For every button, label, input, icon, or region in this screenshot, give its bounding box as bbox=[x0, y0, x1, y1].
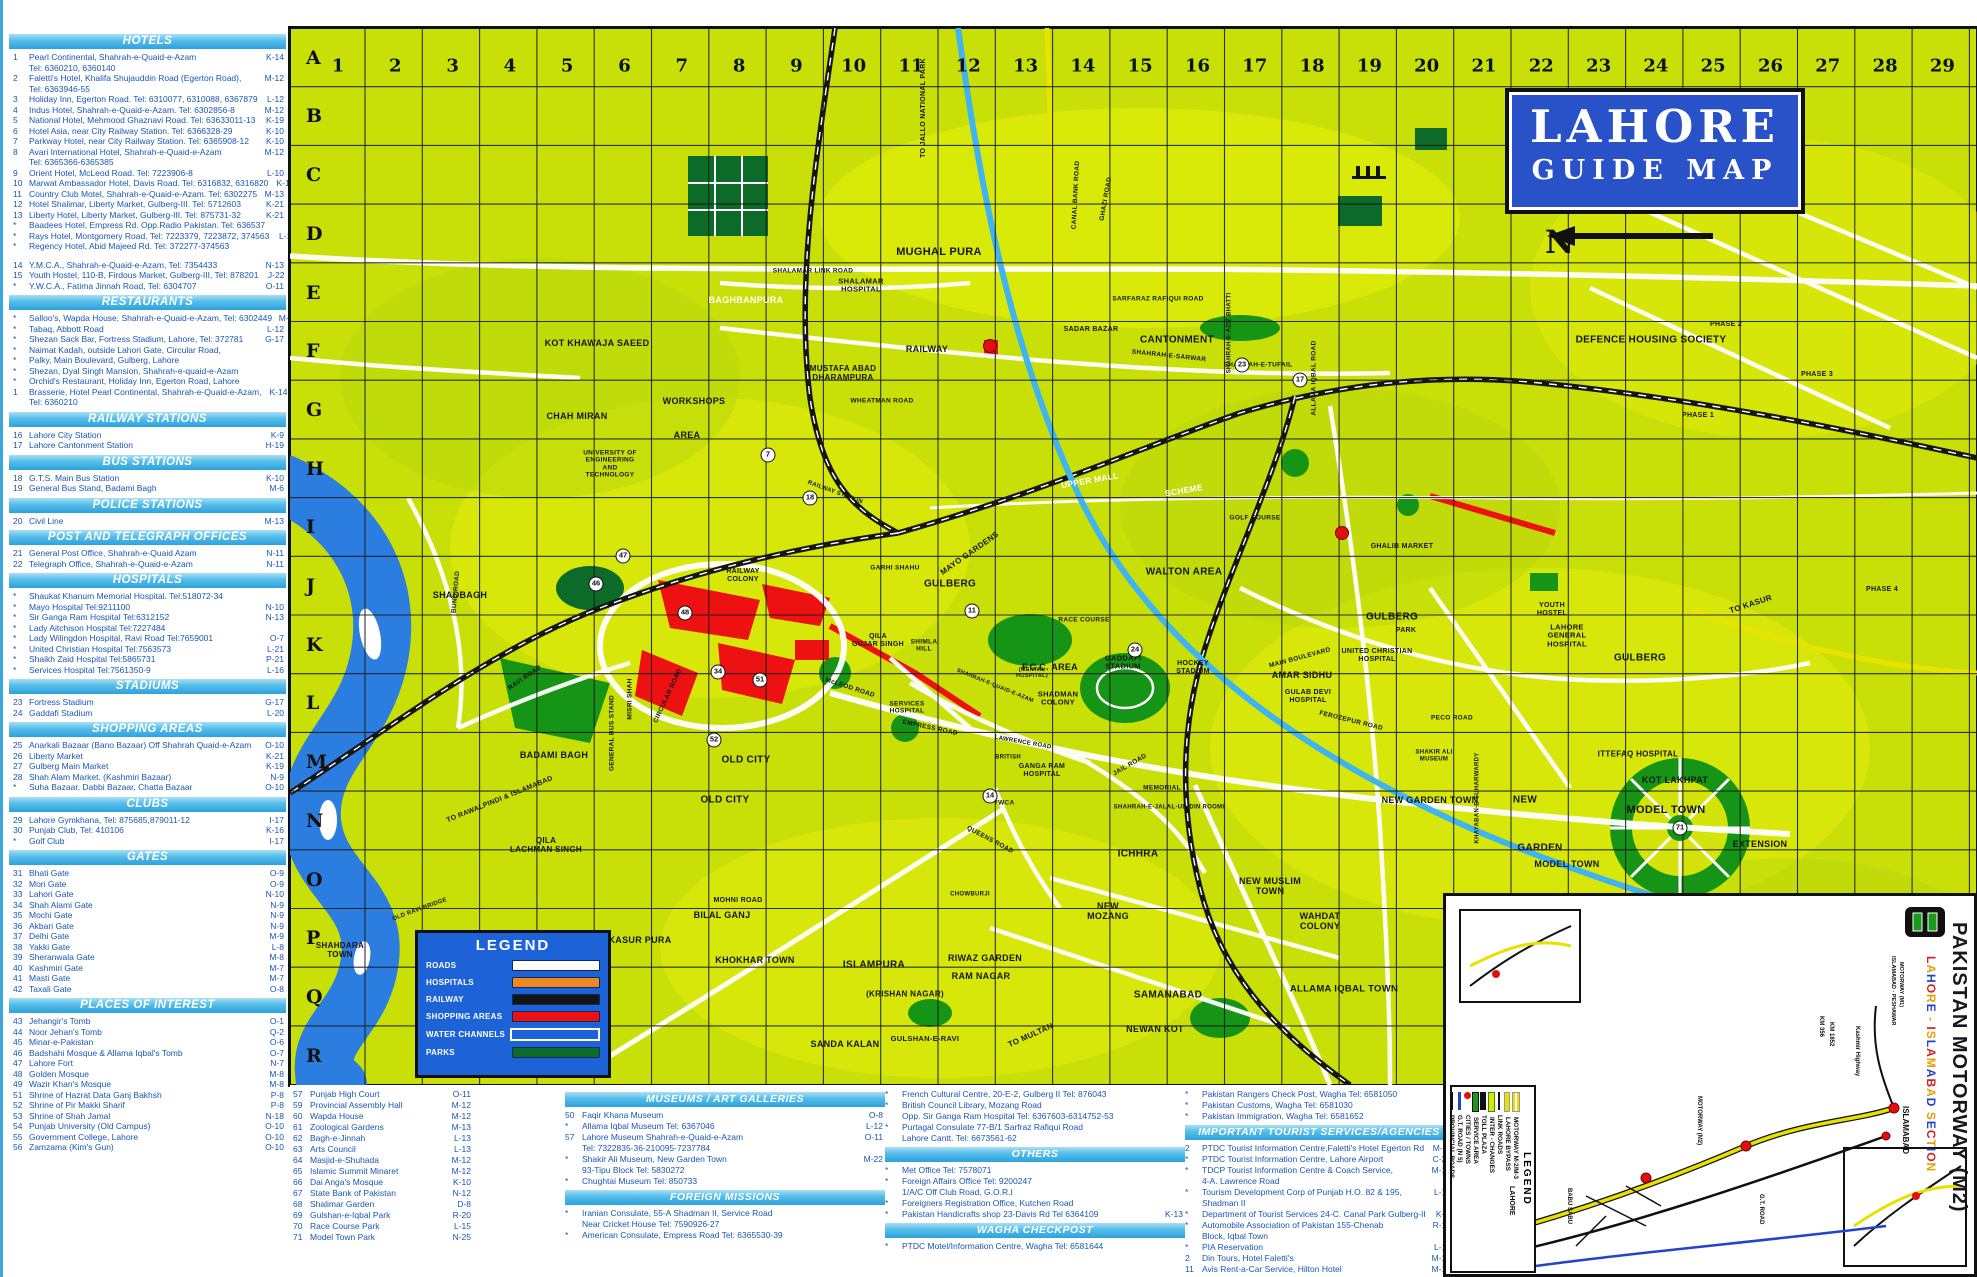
item-text: Wapda House bbox=[310, 1111, 443, 1122]
list-item: *Iranian Consulate, 55-A Shadman II, Ser… bbox=[565, 1208, 885, 1230]
item-line: Din Tours, Hotel Faletti's bbox=[1202, 1253, 1423, 1264]
grid-ref: K-10 bbox=[443, 1177, 473, 1188]
map-label: (KRISHAN NAGAR) bbox=[866, 991, 944, 1000]
grid-row-label: J bbox=[306, 575, 315, 597]
map-label: GOLF COURSE bbox=[1230, 514, 1281, 521]
item-number: * bbox=[1185, 1220, 1202, 1231]
item-text: State Bank of Pakistan bbox=[310, 1188, 443, 1199]
map-label: ITTEFAQ HOSPITAL bbox=[1598, 751, 1679, 760]
item-line: PTDC Tourist Information Centre, Lahore … bbox=[1202, 1154, 1423, 1165]
item-line: General Bus Stand, Badami Bagh bbox=[29, 483, 258, 494]
item-line: Punjab High Court bbox=[310, 1089, 443, 1100]
grid-col-label: 5 bbox=[561, 56, 574, 77]
item-number: 46 bbox=[13, 1048, 29, 1059]
grid-col-label: 26 bbox=[1758, 56, 1783, 77]
grid-col-label: 17 bbox=[1242, 56, 1267, 77]
grid-ref: K-16 bbox=[258, 825, 286, 836]
map-label: OLD CITY bbox=[721, 754, 770, 765]
map-marker: 51 bbox=[753, 673, 768, 688]
list-item: 2PTDC Tourist Information Centre,Faletti… bbox=[1185, 1143, 1453, 1154]
item-text: Avis Rent-a-Car Service, Hilton Hotel bbox=[1202, 1264, 1423, 1275]
map-marker: 11 bbox=[965, 604, 980, 619]
item-text: Mochi Gate bbox=[29, 910, 258, 921]
map-label: MOHNI ROAD bbox=[714, 897, 763, 905]
grid-col-label: 4 bbox=[504, 56, 517, 77]
grid-row-label: G bbox=[306, 399, 322, 421]
red-dot-marker bbox=[1335, 526, 1349, 540]
double-yellow-symbol bbox=[1512, 1092, 1520, 1112]
list-item: *Salloo's, Wapda House, Shahrah-e-Quaid-… bbox=[7, 313, 288, 324]
list-item: 23Fortress StadiumG-17 bbox=[7, 697, 288, 708]
item-text: American Consulate, Empress Road Tel: 63… bbox=[582, 1230, 855, 1241]
list-item: 11Avis Rent-a-Car Service, Hilton HotelM… bbox=[1185, 1264, 1453, 1275]
item-number: * bbox=[1185, 1187, 1202, 1198]
map-label: ICHHRA bbox=[1118, 848, 1159, 859]
item-number: * bbox=[565, 1121, 582, 1132]
list-item: 21General Post Office, Shahrah-e-Quaid A… bbox=[7, 548, 288, 559]
grid-col-label: 20 bbox=[1414, 56, 1439, 77]
grid-col-label: 3 bbox=[446, 56, 459, 77]
grid-ref: R-20 bbox=[443, 1210, 473, 1221]
item-text: Shezan, Dyal Singh Mansion, Shahrah-e-qu… bbox=[29, 366, 258, 377]
legend-item: ROADS bbox=[426, 960, 600, 971]
item-line: PTDC Tourist Information Centre,Faletti'… bbox=[1202, 1143, 1424, 1154]
item-line: Lahore Cantt. Tel: 6673561-62 bbox=[902, 1133, 1155, 1144]
inset-map-label: LAHORE bbox=[1508, 1186, 1515, 1216]
list-item: 57Lahore Museum Shahrah-e-Quaid-e-AzamTe… bbox=[565, 1132, 885, 1154]
map-label: SHAHDARA TOWN bbox=[316, 942, 364, 960]
grid-ref: L-20 bbox=[258, 708, 286, 719]
map-marker: 71 bbox=[1673, 821, 1688, 836]
map-label: CHOWBURJI bbox=[950, 892, 990, 899]
grid-row-label: A bbox=[306, 47, 321, 69]
item-line: Naimat Kadah, outside Lahori Gate, Circu… bbox=[29, 345, 258, 356]
item-line: Holiday Inn, Egerton Road. Tel: 6310077,… bbox=[29, 94, 258, 105]
item-text: Y.M.C.A., Shahrah-e-Quaid-e-Azam, Tel: 7… bbox=[29, 260, 258, 271]
item-line: Lahore Gymkhana, Tel: 875685,879011-12 bbox=[29, 815, 258, 826]
item-line: Iranian Consulate, 55-A Shadman II, Serv… bbox=[582, 1208, 855, 1219]
item-text: Lahore Fort bbox=[29, 1058, 258, 1069]
motorway-symbol-icon bbox=[1904, 906, 1946, 938]
item-number: 51 bbox=[13, 1090, 29, 1101]
list-item: 35Mochi GateN-9 bbox=[7, 910, 288, 921]
legend-label: SHOPPING AREAS bbox=[426, 1012, 502, 1021]
map-label: YOUTH HOSTEL bbox=[1537, 602, 1567, 618]
item-text: British Council Library, Mozang RoadOpp.… bbox=[902, 1100, 1155, 1122]
grid-row-label: I bbox=[306, 516, 315, 538]
item-number: 47 bbox=[13, 1058, 29, 1069]
legend-item: HOSPITALS bbox=[426, 977, 600, 988]
list-item: 63Arts CouncilL-13 bbox=[293, 1144, 473, 1155]
item-number: * bbox=[565, 1230, 582, 1241]
inset-legend-label: INTER - CHANGES bbox=[1488, 1117, 1495, 1173]
item-text: Pakistan Handicrafts shop 23-Davis Rd Te… bbox=[902, 1209, 1155, 1220]
list-item: 10Marwat Ambassador Hotel, Davis Road. T… bbox=[7, 178, 288, 189]
item-text: Services Hospital Tel:7561350-9 bbox=[29, 665, 258, 676]
item-number: * bbox=[885, 1209, 902, 1220]
section-header: CLUBS bbox=[9, 797, 286, 812]
grid-ref: M-7 bbox=[258, 973, 286, 984]
list-item: 30Punjab Club, Tel: 410106K-16 bbox=[7, 825, 288, 836]
item-text: Shrine of Pir Makki Sharif bbox=[29, 1100, 258, 1111]
list-item: 32Mori GateO-9 bbox=[7, 879, 288, 890]
item-number: 20 bbox=[13, 516, 29, 527]
grid-ref: K-14 bbox=[258, 52, 286, 63]
item-line: Pakistan Customs, Wagha Tel: 6581030 bbox=[1202, 1100, 1423, 1111]
grid-col-label: 16 bbox=[1185, 56, 1210, 77]
section-header: RAILWAY STATIONS bbox=[9, 412, 286, 427]
item-number: 1 bbox=[13, 387, 29, 398]
red-dot-marker bbox=[983, 339, 997, 353]
item-text: Faletti's Hotel, Khalifa Shujauddin Road… bbox=[29, 73, 258, 94]
item-text: Shalimar Garden bbox=[310, 1199, 443, 1210]
item-line: United Christian Hospital Tel:7563573 bbox=[29, 644, 258, 655]
map-label: GULSHAN-E-RAVI bbox=[891, 1035, 960, 1043]
map-label: SHAHRAH-E-JALAL-UD-DIN ROOMI bbox=[1114, 805, 1225, 812]
item-text: Automobile Association of Pakistan 155-C… bbox=[1202, 1220, 1423, 1242]
item-number: 57 bbox=[293, 1089, 310, 1100]
item-line: Orchid's Restaurant, Holiday Inn, Egerto… bbox=[29, 376, 258, 387]
item-line: Yakki Gate bbox=[29, 942, 258, 953]
section-header: HOTELS bbox=[9, 34, 286, 49]
list-item: 65Islamic Summit MinaretM-12 bbox=[293, 1166, 473, 1177]
list-item: 5National Hotel, Mehmood Ghaznavi Road. … bbox=[7, 115, 288, 126]
grid-ref: O-10 bbox=[258, 740, 286, 751]
item-line: Bhati Gate bbox=[29, 868, 258, 879]
item-text: Youth Hostel, 110-B, Firdous Market, Gul… bbox=[29, 270, 258, 281]
grid-col-label: 19 bbox=[1357, 56, 1382, 77]
legend-item: PARKS bbox=[426, 1047, 600, 1058]
item-line: Opp. Sir Ganga Ram Hospital Tel: 6367603… bbox=[902, 1111, 1155, 1122]
inset-title: PAKISTAN MOTORWAY (M2) bbox=[1947, 922, 1970, 1213]
list-item: 17Lahore Cantonment StationH-19 bbox=[7, 440, 288, 451]
grid-ref: M-12 bbox=[258, 105, 286, 116]
list-item: 52Shrine of Pir Makki SharifP-8 bbox=[7, 1100, 288, 1111]
item-text: Golf Club bbox=[29, 836, 258, 847]
map-label: RIWAZ GARDEN bbox=[948, 953, 1022, 963]
item-line: Pakistan Handicrafts shop 23-Davis Rd Te… bbox=[902, 1209, 1155, 1220]
item-text: Baadees Hotel, Empress Rd. Opp.Radio Pak… bbox=[29, 220, 265, 231]
item-line: Y.M.C.A., Shahrah-e-Quaid-e-Azam, Tel: 7… bbox=[29, 260, 258, 271]
item-text: Naimat Kadah, outside Lahori Gate, Circu… bbox=[29, 345, 258, 356]
list-item: 40Kashmiri GateM-7 bbox=[7, 963, 288, 974]
list-item: 51Shrine of Hazrat Data Ganj BakhshP-8 bbox=[7, 1090, 288, 1101]
item-text: Wazir Khan's Mosque bbox=[29, 1079, 258, 1090]
item-line: Shaukat Khanum Memorial Hospital. Tel:51… bbox=[29, 591, 258, 602]
item-number: 9 bbox=[13, 168, 29, 179]
item-line: Dai Anga's Mosque bbox=[310, 1177, 443, 1188]
lahore-guide-map-page: HOTELS1Pearl Continental, Shahrah-e-Quai… bbox=[0, 0, 1977, 1277]
item-number: 28 bbox=[13, 772, 29, 783]
list-item: 66Dai Anga's MosqueK-10 bbox=[293, 1177, 473, 1188]
map-marker: 34 bbox=[711, 665, 726, 680]
grid-ref: N-25 bbox=[443, 1232, 473, 1243]
grid-ref: I-17 bbox=[258, 815, 286, 826]
map-label: SADAR BAZAR bbox=[1064, 326, 1119, 334]
item-number: * bbox=[13, 334, 29, 345]
item-line: Orient Hotel, McLeod Road. Tel: 7223906-… bbox=[29, 168, 258, 179]
item-line: Race Course Park bbox=[310, 1221, 443, 1232]
item-line: Lahore Fort bbox=[29, 1058, 258, 1069]
item-text: Orchid's Restaurant, Holiday Inn, Egerto… bbox=[29, 376, 258, 387]
map-label: NEW MUSLIM TOWN bbox=[1239, 876, 1301, 896]
list-item: 14Y.M.C.A., Shahrah-e-Quaid-e-Azam, Tel:… bbox=[7, 260, 288, 271]
item-text: Brasserie, Hotel Pearl Continental, Shah… bbox=[29, 387, 261, 408]
toll-symbol bbox=[1481, 1092, 1487, 1110]
list-item: *Pakistan Handicrafts shop 23-Davis Rd T… bbox=[885, 1209, 1185, 1220]
item-text: Department of Tourist Services 24-C. Can… bbox=[1202, 1209, 1426, 1220]
item-text: Jehangir's Tomb bbox=[29, 1016, 258, 1027]
item-line: Tabaq, Abbott Road bbox=[29, 324, 258, 335]
section-header: MUSEUMS / ART GALLERIES bbox=[565, 1092, 885, 1107]
list-item: 4Indus Hotel, Shahrah-e-Quaid-e-Azam. Te… bbox=[7, 105, 288, 116]
item-line: Mori Gate bbox=[29, 879, 258, 890]
grid-ref: N-9 bbox=[258, 910, 286, 921]
item-text: Hotel Asia, near City Railway Station. T… bbox=[29, 126, 258, 137]
item-line: Gaddafi Stadium bbox=[29, 708, 258, 719]
grid-ref: K-14 bbox=[261, 387, 289, 398]
item-text: Punjab High Court bbox=[310, 1089, 443, 1100]
item-number: 22 bbox=[13, 559, 29, 570]
map-label: GENERAL BUS STAND bbox=[608, 695, 615, 771]
map-label: YWCA bbox=[993, 799, 1014, 806]
list-item: 2Din Tours, Hotel Faletti'sM-12 bbox=[1185, 1253, 1453, 1264]
item-text: Liberty Hotel, Liberty Market, Gulberg-I… bbox=[29, 210, 258, 221]
item-line: Noor Jehan's Tomb bbox=[29, 1027, 258, 1038]
map-label: PHASE 4 bbox=[1866, 586, 1898, 594]
item-line: Country Club Motel, Shahrah-e-Quaid-e-Az… bbox=[29, 189, 258, 200]
inset-map-label: MOTORWAY (M1) bbox=[1898, 962, 1904, 1007]
item-number: * bbox=[885, 1241, 902, 1252]
item-number: 27 bbox=[13, 761, 29, 772]
list-item: 38Yakki GateL-8 bbox=[7, 942, 288, 953]
item-text: Masti Gate bbox=[29, 973, 258, 984]
grid-col-label: 21 bbox=[1471, 56, 1496, 77]
item-number: * bbox=[13, 654, 29, 665]
item-line: Liberty Hotel, Liberty Market, Gulberg-I… bbox=[29, 210, 258, 221]
grid-ref: I-17 bbox=[258, 836, 286, 847]
item-number: * bbox=[13, 281, 29, 292]
map-label: CHAH MIRAN bbox=[547, 411, 608, 421]
legend-label: RAILWAY bbox=[426, 995, 464, 1004]
grid-ref: N-9 bbox=[258, 772, 286, 783]
item-line: Shah Alam Market. (Kashmiri Bazaar) bbox=[29, 772, 258, 783]
map-label: SHADMAN COLONY bbox=[1038, 691, 1078, 708]
item-number: * bbox=[565, 1176, 582, 1187]
list-item: 41Masti GateM-7 bbox=[7, 973, 288, 984]
item-number: * bbox=[13, 313, 29, 324]
map-marker: 46 bbox=[589, 577, 604, 592]
list-item: 71Model Town ParkN-25 bbox=[293, 1232, 473, 1243]
item-line: Wazir Khan's Mosque bbox=[29, 1079, 258, 1090]
list-item: 55Government College, LahoreO-10 bbox=[7, 1132, 288, 1143]
inset-legend-label: PROVINCIAL ROADS bbox=[1448, 1115, 1455, 1178]
item-number: * bbox=[885, 1198, 902, 1209]
bottom-column-2: MUSEUMS / ART GALLERIES50Faqir Khana Mus… bbox=[565, 1089, 885, 1241]
map-label: WHEATMAN ROAD bbox=[851, 397, 914, 404]
item-line: Suha Bazaar, Dabbi Bazaar, Chatta Bazaar bbox=[29, 782, 258, 793]
item-number: 6 bbox=[13, 126, 29, 137]
item-line: Tel: 7322835-36-210095-7237784 bbox=[582, 1143, 855, 1154]
item-number: * bbox=[13, 220, 29, 231]
item-line: Bagh-e-Jinnah bbox=[310, 1133, 443, 1144]
list-item: *French Cultural Centre, 20-E-2, Gulberg… bbox=[885, 1089, 1185, 1100]
list-item: 3Holiday Inn, Egerton Road. Tel: 6310077… bbox=[7, 94, 288, 105]
item-line: Masti Gate bbox=[29, 973, 258, 984]
grid-ref: L-21 bbox=[258, 644, 286, 655]
grid-ref: M-8 bbox=[258, 952, 286, 963]
item-line: Islamic Summit Minaret bbox=[310, 1166, 443, 1177]
list-item: 64Masjid-e-ShuhadaM-12 bbox=[293, 1155, 473, 1166]
item-text: Taxali Gate bbox=[29, 984, 258, 995]
list-item: 16Lahore City StationK-9 bbox=[7, 430, 288, 441]
map-label: BADAMI BAGH bbox=[520, 750, 588, 760]
grid-ref: K-21 bbox=[258, 199, 286, 210]
list-item: *Services Hospital Tel:7561350-9L-16 bbox=[7, 665, 288, 676]
item-number: 59 bbox=[293, 1100, 310, 1111]
list-item: 8Avari International Hotel, Shahrah-e-Qu… bbox=[7, 147, 288, 168]
item-number: 10 bbox=[13, 178, 29, 189]
item-text: Shakir Ali Museum, New Garden Town93-Tip… bbox=[582, 1154, 855, 1176]
grid-ref: O-7 bbox=[258, 1048, 286, 1059]
item-number: 23 bbox=[13, 697, 29, 708]
inset-legend: LEGEND MOTORWAY M-2/M-3LAHORE BYPASSLINK… bbox=[1450, 1085, 1536, 1273]
list-item: 13Liberty Hotel, Liberty Market, Gulberg… bbox=[7, 210, 288, 221]
item-text: Sir Ganga Ram Hospital Tel:6312152 bbox=[29, 612, 258, 623]
map-label: BILAL GANJ bbox=[694, 910, 751, 920]
item-line: Youth Hostel, 110-B, Firdous Market, Gul… bbox=[29, 270, 258, 281]
map-title-box: LAHORE GUIDE MAP bbox=[1505, 88, 1805, 214]
item-line: Sir Ganga Ram Hospital Tel:6312152 bbox=[29, 612, 258, 623]
item-line: PIA Reservation bbox=[1202, 1242, 1423, 1253]
list-item: 68Shalimar GardenD-8 bbox=[293, 1199, 473, 1210]
inset-legend-label: SERVICE AREA bbox=[1472, 1117, 1479, 1164]
section-header: WAGHA CHECKPOST bbox=[885, 1223, 1185, 1238]
item-text: Salloo's, Wapda House, Shahrah-e-Quaid-e… bbox=[29, 313, 272, 324]
item-text: Rays Hotel, Montgomery Road. Tel: 722337… bbox=[29, 231, 269, 242]
grid-ref: N-7 bbox=[258, 1058, 286, 1069]
grid-ref: K-13 bbox=[1155, 1209, 1185, 1220]
item-line: Near Cricket House Tel: 7590926-27 bbox=[582, 1219, 855, 1230]
grid-ref: N-13 bbox=[258, 260, 286, 271]
grid-ref: O-7 bbox=[258, 633, 286, 644]
item-number: 53 bbox=[13, 1111, 29, 1122]
grid-row-label: B bbox=[306, 105, 322, 127]
list-item: *Shezan, Dyal Singh Mansion, Shahrah-e-q… bbox=[7, 366, 288, 377]
grid-row-label: E bbox=[306, 282, 320, 304]
item-line: National Hotel, Mehmood Ghaznavi Road. T… bbox=[29, 115, 258, 126]
map-label: UNITED CHRISTIAN HOSPITAL bbox=[1342, 648, 1413, 664]
item-line: Punjab Club, Tel: 410106 bbox=[29, 825, 258, 836]
item-number: 54 bbox=[13, 1121, 29, 1132]
item-number: 33 bbox=[13, 889, 29, 900]
map-label: SANDA KALAN bbox=[811, 1039, 880, 1049]
list-item: 57Punjab High CourtO-11 bbox=[293, 1089, 473, 1100]
inset-legend-item: LAHORE BYPASS bbox=[1504, 1092, 1511, 1266]
inset-legend-item: SERVICE AREA bbox=[1472, 1092, 1479, 1266]
grid-ref: M-22 bbox=[855, 1154, 885, 1165]
grid-col-label: 10 bbox=[841, 56, 866, 77]
item-line: Civil Line bbox=[29, 516, 258, 527]
item-number: * bbox=[13, 836, 29, 847]
item-number: 52 bbox=[13, 1100, 29, 1111]
item-number: 61 bbox=[293, 1122, 310, 1133]
map-label: EXTENSION bbox=[1733, 839, 1788, 849]
list-item: *Pakistan Rangers Check Post, Wagha Tel:… bbox=[1185, 1089, 1453, 1100]
item-line: Faletti's Hotel, Khalifa Shujauddin Road… bbox=[29, 73, 258, 84]
item-text: Faqir Khana Museum bbox=[582, 1110, 855, 1121]
blue-symbol bbox=[1458, 1092, 1461, 1110]
item-line: Zamzama (Kim's Gun) bbox=[29, 1142, 258, 1153]
grid-col-label: 9 bbox=[790, 56, 803, 77]
item-text: Noor Jehan's Tomb bbox=[29, 1027, 258, 1038]
list-item: 37Delhi GateM-9 bbox=[7, 931, 288, 942]
legend-label: HOSPITALS bbox=[426, 978, 474, 987]
grid-col-label: 28 bbox=[1873, 56, 1898, 77]
item-line: Purtagal Consulate 77-B/1 Sarfraz Rafiqu… bbox=[902, 1122, 1155, 1133]
grid-ref: M-12 bbox=[443, 1100, 473, 1111]
inset-legend-item: TOLL PLAZA bbox=[1480, 1092, 1487, 1266]
list-item: 48Golden MosqueM-8 bbox=[7, 1069, 288, 1080]
item-text: Foreign Affairs Office Tel: 92002471/A/C… bbox=[902, 1176, 1155, 1198]
map-legend-title: LEGEND bbox=[426, 937, 600, 954]
item-text: Gulberg Main Market bbox=[29, 761, 258, 772]
item-text: Fortress Stadium bbox=[29, 697, 258, 708]
item-line: Jehangir's Tomb bbox=[29, 1016, 258, 1027]
item-number: * bbox=[885, 1089, 902, 1100]
item-line: Liberty Market bbox=[29, 751, 258, 762]
section-header: PLACES OF INTEREST bbox=[9, 998, 286, 1013]
item-line: TDCP Tourist Information Centre & Coach … bbox=[1202, 1165, 1423, 1176]
grid-ref: M-7 bbox=[258, 963, 286, 974]
item-line: Indus Hotel, Shahrah-e-Quaid-e-Azam. Tel… bbox=[29, 105, 258, 116]
section-header: FOREIGN MISSIONS bbox=[565, 1190, 885, 1205]
item-line: State Bank of Pakistan bbox=[310, 1188, 443, 1199]
grid-col-label: 23 bbox=[1586, 56, 1611, 77]
item-line: Pakistan Rangers Check Post, Wagha Tel: … bbox=[1202, 1089, 1423, 1100]
list-item: *Allama Iqbal Museum Tel: 6367046L-12 bbox=[565, 1121, 885, 1132]
item-text: Lady Wilingdon Hospital, Ravi Road Tel:7… bbox=[29, 633, 258, 644]
item-line: Lady Aitchison Hospital Tel:7227484 bbox=[29, 623, 258, 634]
map-marker: 7 bbox=[761, 448, 776, 463]
item-number: 42 bbox=[13, 984, 29, 995]
item-line: Shezan Sack Bar, Fortress Stadium, Lahor… bbox=[29, 334, 258, 345]
map-label: QILA GUJAR SINGH bbox=[852, 633, 904, 649]
section-header: IMPORTANT TOURIST SERVICES/AGENCIES bbox=[1185, 1125, 1453, 1140]
item-line: Zoological Gardens bbox=[310, 1122, 443, 1133]
item-line: Rays Hotel, Montgomery Road. Tel: 722337… bbox=[29, 231, 269, 242]
item-text: Pakistan Customs, Wagha Tel: 6581030 bbox=[1202, 1100, 1423, 1111]
inset-legend-label: LAHORE BYPASS bbox=[1504, 1117, 1511, 1171]
item-text: Minar-e-Pakistan bbox=[29, 1037, 258, 1048]
item-number: 39 bbox=[13, 952, 29, 963]
grid-ref: K-21 bbox=[258, 210, 286, 221]
item-text: Anarkali Bazaar (Bano Bazaar) Off Shahra… bbox=[29, 740, 258, 751]
list-item: *Naimat Kadah, outside Lahori Gate, Circ… bbox=[7, 345, 288, 356]
map-label: GULBERG bbox=[924, 578, 976, 589]
item-line: Met Office Tel: 7578071 bbox=[902, 1165, 1155, 1176]
grid-ref: P-8 bbox=[258, 1100, 286, 1111]
item-line: PTDC Motel/Information Centre, Wagha Tel… bbox=[902, 1241, 1155, 1252]
item-line: Lady Wilingdon Hospital, Ravi Road Tel:7… bbox=[29, 633, 258, 644]
item-number: 63 bbox=[293, 1144, 310, 1155]
inset-map-label: Kashmir Highway bbox=[1854, 1026, 1860, 1076]
item-number: 25 bbox=[13, 740, 29, 751]
item-text: Holiday Inn, Egerton Road. Tel: 6310077,… bbox=[29, 94, 258, 105]
list-item: *Pakistan Immigration, Wagha Tel: 658165… bbox=[1185, 1111, 1453, 1122]
item-line: Model Town Park bbox=[310, 1232, 443, 1243]
item-line: Pearl Continental, Shahrah-e-Quaid-e-Aza… bbox=[29, 52, 258, 63]
